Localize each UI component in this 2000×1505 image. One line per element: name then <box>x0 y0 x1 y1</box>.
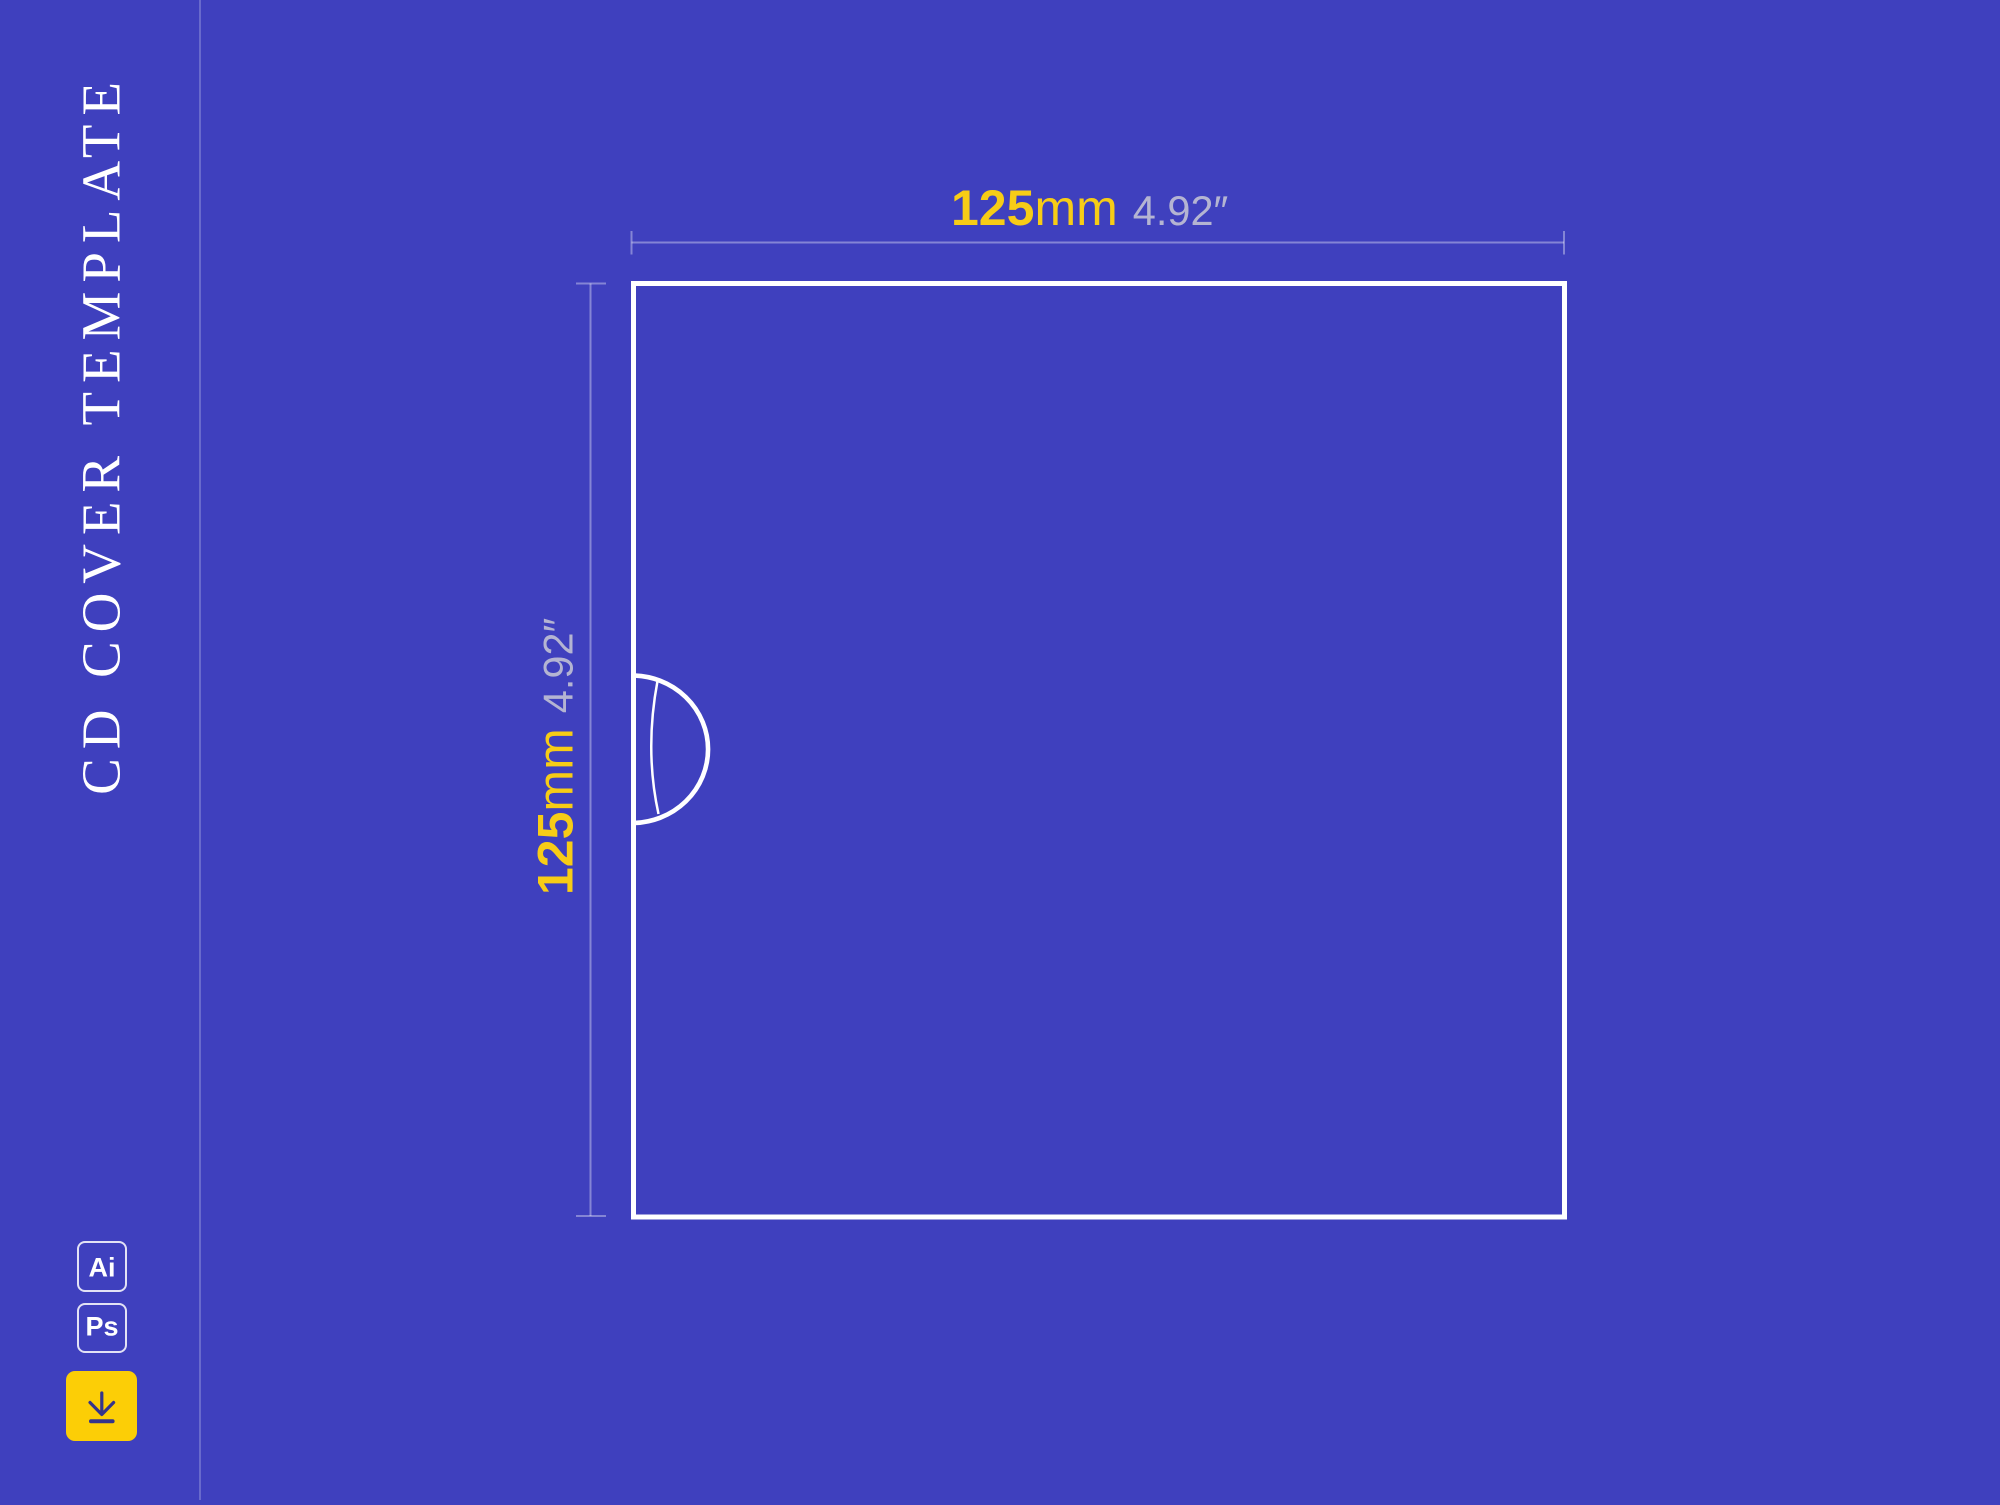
svg-text:125mm4.92″: 125mm4.92″ <box>528 618 584 895</box>
svg-text:CD COVER TEMPLATE: CD COVER TEMPLATE <box>71 73 132 795</box>
svg-text:Ai: Ai <box>89 1253 116 1283</box>
svg-text:Ps: Ps <box>85 1312 118 1342</box>
svg-text:125mm4.92″: 125mm4.92″ <box>951 180 1228 236</box>
